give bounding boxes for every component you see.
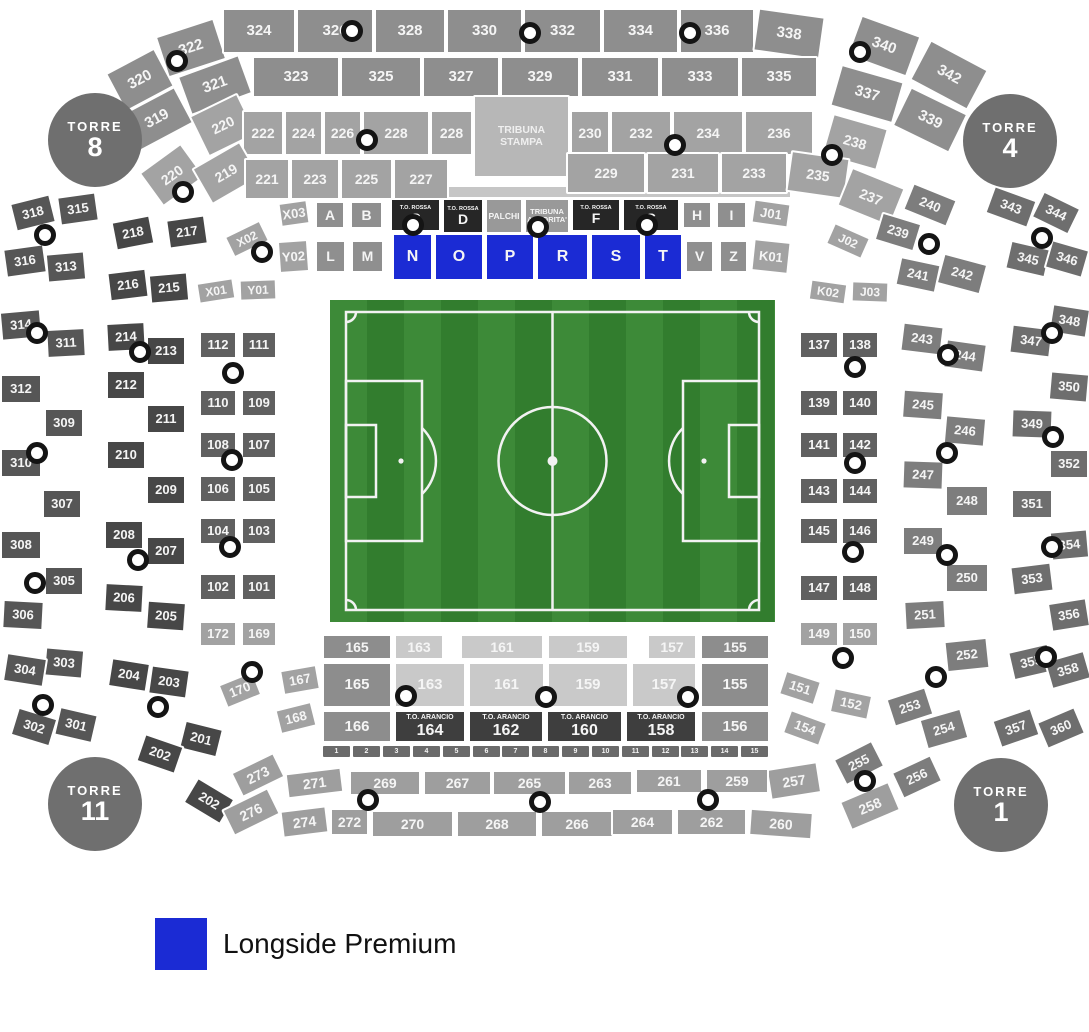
gate-marker-icon [832,647,854,669]
section-101[interactable]: 101 [241,573,277,601]
section-110[interactable]: 110 [199,389,237,417]
gate-marker-icon [26,322,48,344]
section-V[interactable]: V [685,240,714,273]
gate-marker-icon [222,362,244,384]
section-140[interactable]: 140 [841,389,879,417]
section-J02[interactable]: J02 [825,222,871,260]
section-O[interactable]: O [434,233,484,281]
section-335[interactable]: 335 [740,56,818,98]
section-164[interactable]: T.O. ARANCIO164 [394,710,466,743]
section-211[interactable]: 211 [146,404,186,434]
gate-marker-icon [221,449,243,471]
section-1[interactable]: 1 [322,745,351,758]
section-260[interactable]: 260 [748,808,814,840]
gate-marker-icon [1035,646,1057,668]
section-160[interactable]: T.O. ARANCIO160 [546,710,623,743]
section-144[interactable]: 144 [841,477,879,505]
gate-marker-icon [821,144,843,166]
section-13[interactable]: 13 [680,745,709,758]
gate-marker-icon [34,224,56,246]
gate-marker-icon [936,442,958,464]
section-K02[interactable]: K02 [808,278,849,305]
section-247[interactable]: 247 [901,459,944,490]
section-3[interactable]: 3 [382,745,411,758]
section-M[interactable]: M [351,240,384,273]
section-312[interactable]: 312 [0,374,42,404]
gate-marker-icon [844,356,866,378]
section-264[interactable]: 264 [611,808,674,836]
section-R[interactable]: R [536,233,589,281]
section-316[interactable]: 316 [2,243,48,279]
section-242[interactable]: 242 [936,253,989,296]
gate-marker-icon [535,686,557,708]
section-A[interactable]: A [315,201,345,229]
section-302[interactable]: 302 [10,707,59,748]
tower-11: TORRE11 [48,757,142,851]
section-305[interactable]: 305 [44,566,84,596]
section-327[interactable]: 327 [422,56,500,98]
section-202[interactable]: 202 [135,733,184,775]
section-222[interactable]: 222 [242,110,284,156]
section-Y02[interactable]: Y02 [277,239,310,274]
section-168[interactable]: 168 [274,701,317,735]
section-103[interactable]: 103 [241,517,277,545]
section-270[interactable]: 270 [371,810,454,838]
gate-marker-icon [1031,227,1053,249]
section-X03[interactable]: X03 [277,199,310,228]
section-159[interactable]: 159 [547,634,629,660]
section-218[interactable]: 218 [111,214,156,251]
section-226[interactable]: 226 [323,110,362,156]
section-143[interactable]: 143 [799,477,839,505]
section-212[interactable]: 212 [106,370,146,400]
section-351[interactable]: 351 [1011,489,1053,519]
section-265[interactable]: 265 [492,770,567,796]
gate-marker-icon [937,344,959,366]
pitch-markings [330,300,775,622]
gate-marker-icon [395,685,417,707]
section-K01[interactable]: K01 [750,238,791,275]
section-7[interactable]: 7 [501,745,530,758]
section-209[interactable]: 209 [146,475,186,505]
section-167[interactable]: 167 [279,664,321,696]
section-10[interactable]: 10 [591,745,620,758]
section-230[interactable]: 230 [570,110,610,156]
tower-8: TORRE8 [48,93,142,187]
section-328[interactable]: 328 [374,8,446,54]
section-8[interactable]: 8 [531,745,560,758]
tower-4: TORRE4 [963,94,1057,188]
section-163[interactable]: 163 [394,634,444,660]
section-352[interactable]: 352 [1049,449,1089,479]
section-274[interactable]: 274 [279,805,329,839]
tower-number: 11 [81,798,110,825]
section-223[interactable]: 223 [290,158,340,200]
section-166[interactable]: 166 [322,710,392,743]
section-P[interactable]: P [485,233,535,281]
section-159[interactable]: 159 [547,662,629,708]
section-106[interactable]: 106 [199,475,237,503]
gate-marker-icon [844,452,866,474]
tower-1: TORRE1 [954,758,1048,852]
section-label: 162 [493,723,520,739]
section-329[interactable]: 329 [500,56,580,98]
section-228[interactable]: 228 [430,110,473,156]
section-262[interactable]: 262 [676,808,747,836]
section-TRIBUNA-STAMPA[interactable]: TRIBUNA STAMPA [473,95,570,178]
section-111[interactable]: 111 [241,331,277,359]
section-203[interactable]: 203 [147,664,191,699]
section-B[interactable]: B [350,201,383,229]
legend: Longside Premium [155,918,456,970]
section-14[interactable]: 14 [710,745,739,758]
section-325[interactable]: 325 [340,56,422,98]
section-I[interactable]: I [716,201,747,229]
section-356[interactable]: 356 [1047,597,1089,633]
section-248[interactable]: 248 [945,485,989,517]
section-301[interactable]: 301 [53,706,99,744]
gate-marker-icon [1042,426,1064,448]
section-334[interactable]: 334 [602,8,679,54]
section-Y01[interactable]: Y01 [239,278,278,301]
section-X01[interactable]: X01 [196,277,237,305]
gate-marker-icon [664,134,686,156]
section-158[interactable]: T.O. ARANCIO158 [625,710,697,743]
section-224[interactable]: 224 [284,110,323,156]
section-331[interactable]: 331 [580,56,660,98]
section-239[interactable]: 239 [874,212,923,253]
section-261[interactable]: 261 [635,768,703,794]
section-241[interactable]: 241 [894,256,941,294]
section-146[interactable]: 146 [841,517,879,545]
section-148[interactable]: 148 [841,574,879,602]
section-label: 160 [571,723,598,739]
section-263[interactable]: 263 [567,770,633,796]
section-205[interactable]: 205 [145,600,187,633]
section-141[interactable]: 141 [799,431,839,459]
gate-marker-icon [918,233,940,255]
gate-marker-icon [1041,536,1063,558]
section-311[interactable]: 311 [45,327,87,359]
section-15[interactable]: 15 [740,745,769,758]
gate-marker-icon [32,694,54,716]
section-210[interactable]: 210 [106,440,146,470]
section-4[interactable]: 4 [412,745,441,758]
section-357[interactable]: 357 [991,707,1040,749]
gate-marker-icon [129,341,151,363]
section-label: F [592,211,601,225]
section-150[interactable]: 150 [841,621,879,647]
gate-marker-icon [925,666,947,688]
section-Z[interactable]: Z [719,240,748,273]
section-154[interactable]: 154 [782,709,828,747]
section-label: 158 [648,723,675,739]
section-11[interactable]: 11 [621,745,650,758]
section-257[interactable]: 257 [766,761,822,801]
section-324[interactable]: 324 [222,8,296,54]
section-S[interactable]: S [590,233,642,281]
gate-marker-icon [241,661,263,683]
gate-marker-icon [219,536,241,558]
section-165[interactable]: 165 [322,634,392,660]
section-201[interactable]: 201 [178,720,224,759]
gate-marker-icon [849,41,871,63]
section-304[interactable]: 304 [2,652,48,688]
section-225[interactable]: 225 [340,158,393,200]
gate-marker-icon [26,442,48,464]
gate-marker-icon [357,789,379,811]
section-207[interactable]: 207 [146,536,186,566]
section-161[interactable]: 161 [468,662,545,708]
section-D[interactable]: T.O. ROSSAD [442,198,484,234]
section-J01[interactable]: J01 [750,198,791,228]
section-236[interactable]: 236 [744,110,814,156]
section-label: 164 [417,723,444,739]
section-138[interactable]: 138 [841,331,879,359]
section-231[interactable]: 231 [646,152,720,194]
tower-number: 8 [87,134,102,161]
gate-marker-icon [677,686,699,708]
section-165[interactable]: 165 [322,662,392,708]
section-208[interactable]: 208 [104,520,144,550]
gate-marker-icon [854,770,876,792]
section-353[interactable]: 353 [1009,562,1054,597]
section-206[interactable]: 206 [103,582,145,614]
section-215[interactable]: 215 [148,271,190,304]
gate-marker-icon [127,549,149,571]
gate-marker-icon [251,241,273,263]
section-333[interactable]: 333 [660,56,740,98]
section-323[interactable]: 323 [252,56,340,98]
section-313[interactable]: 313 [45,250,87,283]
section-PALCHI[interactable]: PALCHI [485,198,523,234]
gate-marker-icon [402,214,424,236]
section-107[interactable]: 107 [241,431,277,459]
section-276[interactable]: 276 [221,787,281,837]
section-N[interactable]: N [392,233,433,281]
section-252[interactable]: 252 [943,637,990,673]
section-256[interactable]: 256 [891,754,944,800]
section-162[interactable]: T.O. ARANCIO162 [468,710,544,743]
section-303[interactable]: 303 [43,646,85,679]
section-232[interactable]: 232 [610,110,672,156]
gate-marker-icon [842,541,864,563]
section-306[interactable]: 306 [1,599,45,631]
tower-number: 4 [1002,135,1017,162]
section-label: D [458,212,468,226]
section-172[interactable]: 172 [199,621,237,647]
section-F[interactable]: T.O. ROSSAF [571,198,621,232]
gate-marker-icon [172,181,194,203]
section-268[interactable]: 268 [456,810,538,838]
tower-number: 1 [993,799,1008,826]
legend-label: Longside Premium [223,928,456,960]
gate-marker-icon [529,791,551,813]
section-315[interactable]: 315 [56,191,100,226]
section-152[interactable]: 152 [829,687,874,721]
section-233[interactable]: 233 [720,152,788,194]
pitch [330,300,775,622]
section-2[interactable]: 2 [352,745,381,758]
gate-marker-icon [636,214,658,236]
section-221[interactable]: 221 [244,158,290,200]
legend-swatch-longside-premium [155,918,207,970]
section-112[interactable]: 112 [199,331,237,359]
section-216[interactable]: 216 [106,268,149,303]
section-338[interactable]: 338 [752,7,825,60]
section-139[interactable]: 139 [799,389,839,417]
section-147[interactable]: 147 [799,574,839,602]
section-155[interactable]: 155 [700,662,770,708]
gate-marker-icon [1041,322,1063,344]
section-109[interactable]: 109 [241,389,277,417]
section-271[interactable]: 271 [285,767,345,800]
section-T[interactable]: T [643,233,683,281]
section-307[interactable]: 307 [42,489,82,519]
section-J03[interactable]: J03 [851,280,890,303]
section-229[interactable]: 229 [566,152,646,194]
section-H[interactable]: H [682,201,712,229]
gate-marker-icon [697,789,719,811]
section-137[interactable]: 137 [799,331,839,359]
gate-marker-icon [166,50,188,72]
section-330[interactable]: 330 [446,8,523,54]
section-245[interactable]: 245 [901,389,945,422]
section-102[interactable]: 102 [199,573,237,601]
section-145[interactable]: 145 [799,517,839,545]
section-272[interactable]: 272 [330,808,369,836]
section-157[interactable]: 157 [647,634,697,660]
section-308[interactable]: 308 [0,530,42,560]
section-217[interactable]: 217 [165,214,209,249]
section-169[interactable]: 169 [241,621,277,647]
section-9[interactable]: 9 [561,745,590,758]
section-156[interactable]: 156 [700,710,770,743]
section-250[interactable]: 250 [945,563,989,593]
gate-marker-icon [341,20,363,42]
section-360[interactable]: 360 [1036,706,1086,750]
section-151[interactable]: 151 [778,670,822,706]
section-343[interactable]: 343 [984,185,1037,229]
section-L[interactable]: L [315,240,346,273]
section-204[interactable]: 204 [107,657,151,693]
section-213[interactable]: 213 [146,336,186,366]
section-155[interactable]: 155 [700,634,770,660]
section-105[interactable]: 105 [241,475,277,503]
gate-marker-icon [24,572,46,594]
gate-marker-icon [679,22,701,44]
section-309[interactable]: 309 [44,408,84,438]
section-12[interactable]: 12 [651,745,680,758]
section-267[interactable]: 267 [423,770,492,796]
section-259[interactable]: 259 [705,768,769,794]
gate-marker-icon [147,696,169,718]
section-149[interactable]: 149 [799,621,839,647]
section-227[interactable]: 227 [393,158,449,200]
gate-marker-icon [519,22,541,44]
section-266[interactable]: 266 [540,810,614,838]
section-251[interactable]: 251 [903,599,947,631]
gate-marker-icon [527,216,549,238]
gate-marker-icon [936,544,958,566]
section-161[interactable]: 161 [460,634,544,660]
gate-marker-icon [356,129,378,151]
section-5[interactable]: 5 [442,745,471,758]
stadium-map: Longside Premium 32232032432632833033233… [0,0,1089,1032]
section-6[interactable]: 6 [472,745,501,758]
section-350[interactable]: 350 [1048,370,1089,403]
